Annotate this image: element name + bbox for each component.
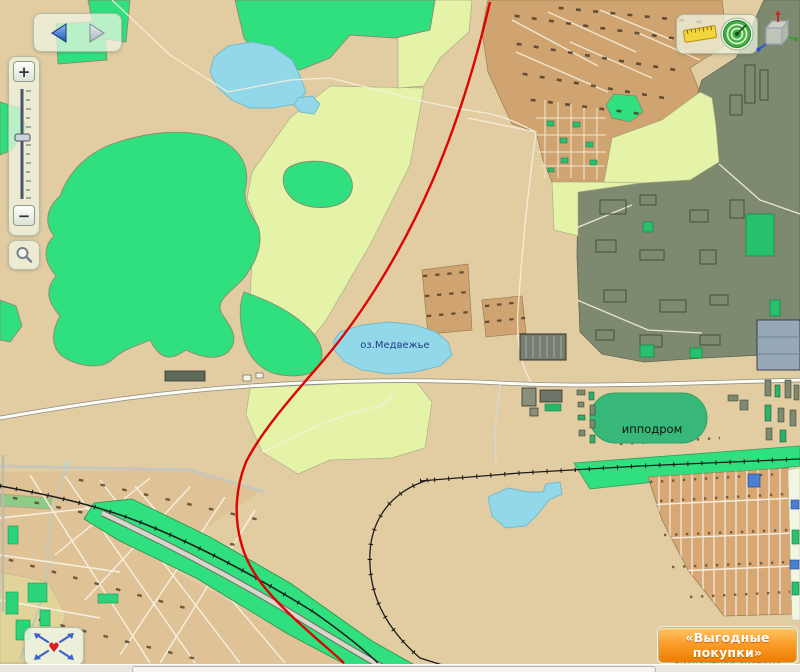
ad-banner[interactable]: «Выгодные покупки» дисконтная система <box>658 627 797 663</box>
map-viewport[interactable]: ипподром <box>0 0 800 672</box>
radar-icon <box>719 16 755 52</box>
zoom-panel: + − <box>8 56 40 236</box>
zoom-slider[interactable] <box>9 85 39 203</box>
lake-label: оз.Медвежье <box>360 340 429 351</box>
tools-panel <box>676 14 758 54</box>
scrollbar-thumb[interactable] <box>132 666 656 672</box>
forward-arrow-icon <box>85 22 109 44</box>
ruler-button[interactable] <box>681 21 719 47</box>
ruler-icon <box>681 21 719 47</box>
back-arrow-icon <box>47 22 71 44</box>
zoom-in-button[interactable]: + <box>13 61 35 82</box>
pan-favorites-button[interactable]: ♥ <box>24 627 84 666</box>
map-canvas[interactable]: ипподром <box>0 0 800 664</box>
horizontal-scrollbar[interactable] <box>0 664 800 672</box>
heart-icon: ♥ <box>48 641 60 656</box>
hippodrome: ипподром <box>590 393 707 443</box>
nav-panel <box>33 13 122 52</box>
zoom-out-button[interactable]: − <box>13 205 35 226</box>
zoom-slider-handle[interactable] <box>15 134 30 141</box>
hippodrome-label: ипподром <box>622 422 683 436</box>
ad-title: «Выгодные покупки» <box>659 630 796 660</box>
magnifier-icon <box>14 245 34 265</box>
pan-arrows-icon: ♥ <box>28 631 80 662</box>
radar-button[interactable] <box>719 16 755 52</box>
forward-button[interactable] <box>82 20 112 45</box>
cube-3d-icon <box>754 10 798 56</box>
magnifier-button[interactable] <box>8 240 40 270</box>
back-button[interactable] <box>44 20 74 45</box>
cube-3d-button[interactable] <box>754 10 798 56</box>
